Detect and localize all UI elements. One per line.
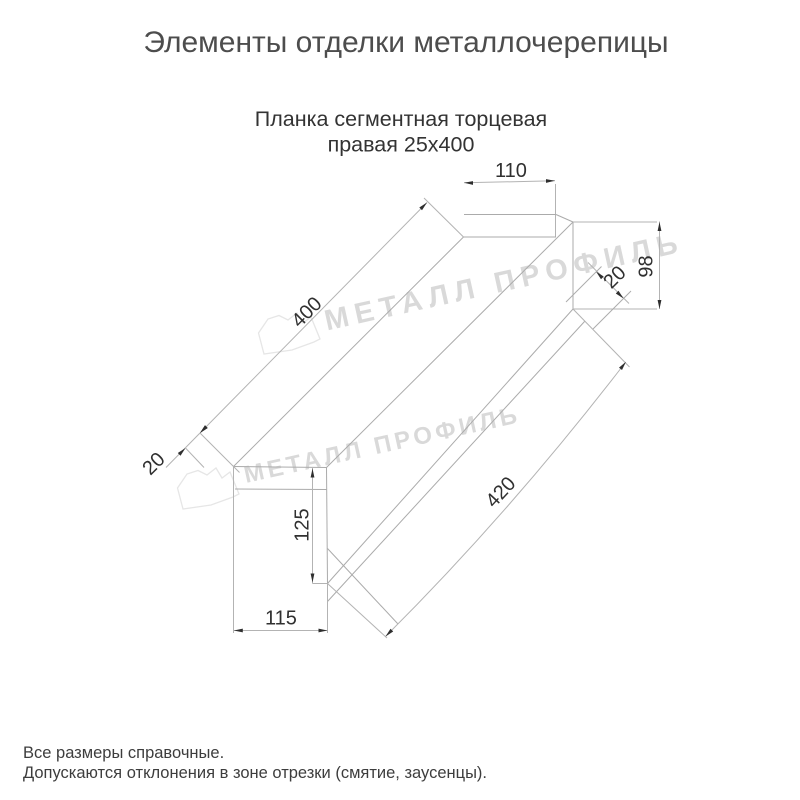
svg-text:правая 25х400: правая 25х400	[328, 133, 475, 157]
svg-text:98: 98	[636, 255, 658, 277]
svg-text:Элементы отделки металлочерепи: Элементы отделки металлочерепицы	[143, 26, 668, 59]
svg-text:Все размеры справочные.: Все размеры справочные.	[23, 744, 224, 762]
svg-text:Допускаются отклонения в зоне: Допускаются отклонения в зоне отрезки (с…	[23, 764, 487, 782]
svg-text:Планка сегментная торцевая: Планка сегментная торцевая	[255, 107, 547, 131]
svg-text:125: 125	[292, 508, 314, 541]
svg-text:110: 110	[495, 160, 527, 182]
svg-text:115: 115	[265, 608, 297, 630]
